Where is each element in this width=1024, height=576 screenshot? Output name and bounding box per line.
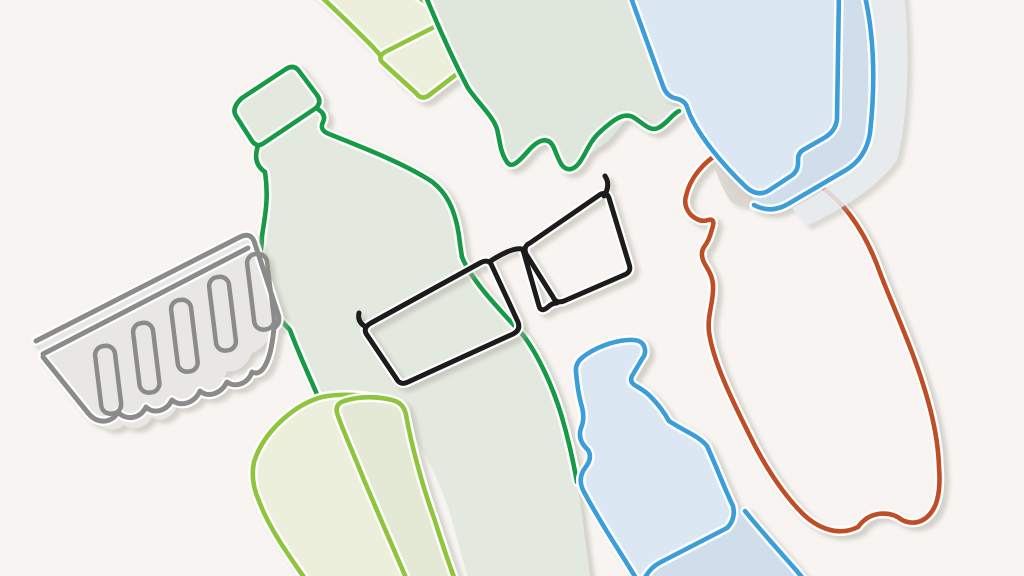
illustration-stage bbox=[0, 0, 1024, 576]
plastic-items-illustration bbox=[0, 0, 1024, 576]
